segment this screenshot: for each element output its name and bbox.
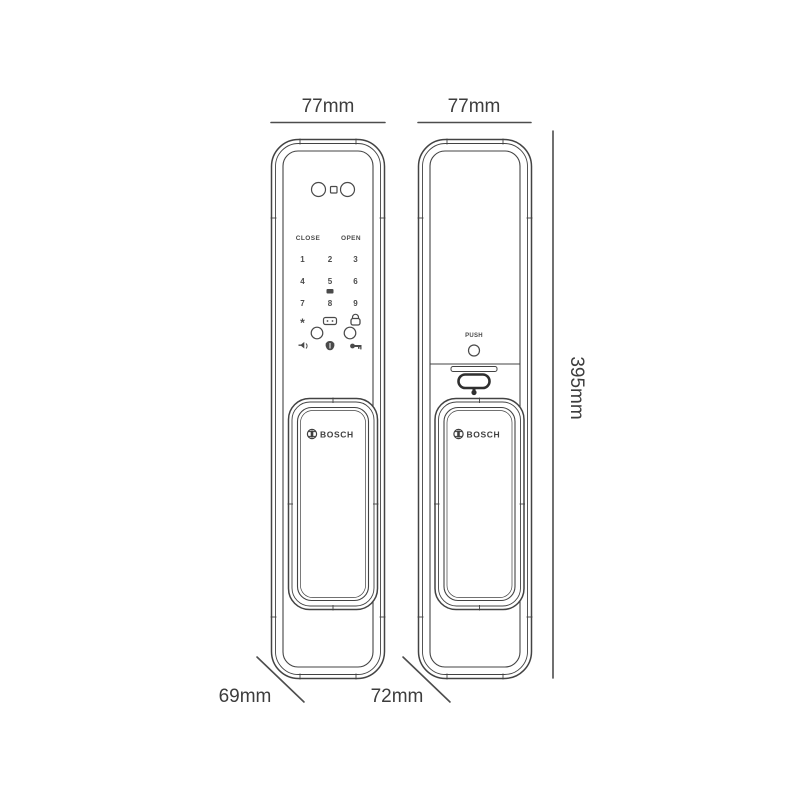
key-star: * bbox=[300, 316, 305, 330]
front-view-device: CLOSE OPEN 1 2 3 4 5 6 7 8 9 * bbox=[271, 139, 386, 680]
close-label: CLOSE bbox=[296, 235, 321, 242]
push-label: PUSH bbox=[465, 333, 483, 339]
key-3: 3 bbox=[353, 255, 358, 264]
back-handle: BOSCH bbox=[434, 398, 525, 611]
key-7: 7 bbox=[300, 299, 305, 308]
key-5: 5 bbox=[328, 277, 333, 286]
key-2: 2 bbox=[328, 255, 333, 264]
front-depth-label: 69mm bbox=[219, 686, 272, 707]
open-label: OPEN bbox=[341, 235, 361, 242]
key-8: 8 bbox=[328, 299, 333, 308]
back-depth-label: 72mm bbox=[371, 686, 424, 707]
key-6: 6 bbox=[353, 277, 358, 286]
key-4: 4 bbox=[300, 277, 305, 286]
front-width-label: 77mm bbox=[302, 96, 355, 117]
key-9: 9 bbox=[353, 299, 358, 308]
back-width-label: 77mm bbox=[448, 96, 501, 117]
back-brand-label: BOSCH bbox=[467, 430, 501, 440]
front-brand-label: BOSCH bbox=[320, 430, 354, 440]
smart-lock-dimension-drawing: 77mm 77mm 395mm 69mm 72mm CLOSE OP bbox=[0, 0, 800, 800]
front-handle: BOSCH bbox=[288, 398, 379, 611]
back-view-device: PUSH bbox=[418, 139, 533, 680]
product-dimension-diagram: 77mm 77mm 395mm 69mm 72mm CLOSE OP bbox=[0, 0, 800, 800]
height-label: 395mm bbox=[566, 356, 587, 419]
keypad-mid-mark bbox=[327, 289, 334, 294]
key-1: 1 bbox=[300, 255, 305, 264]
